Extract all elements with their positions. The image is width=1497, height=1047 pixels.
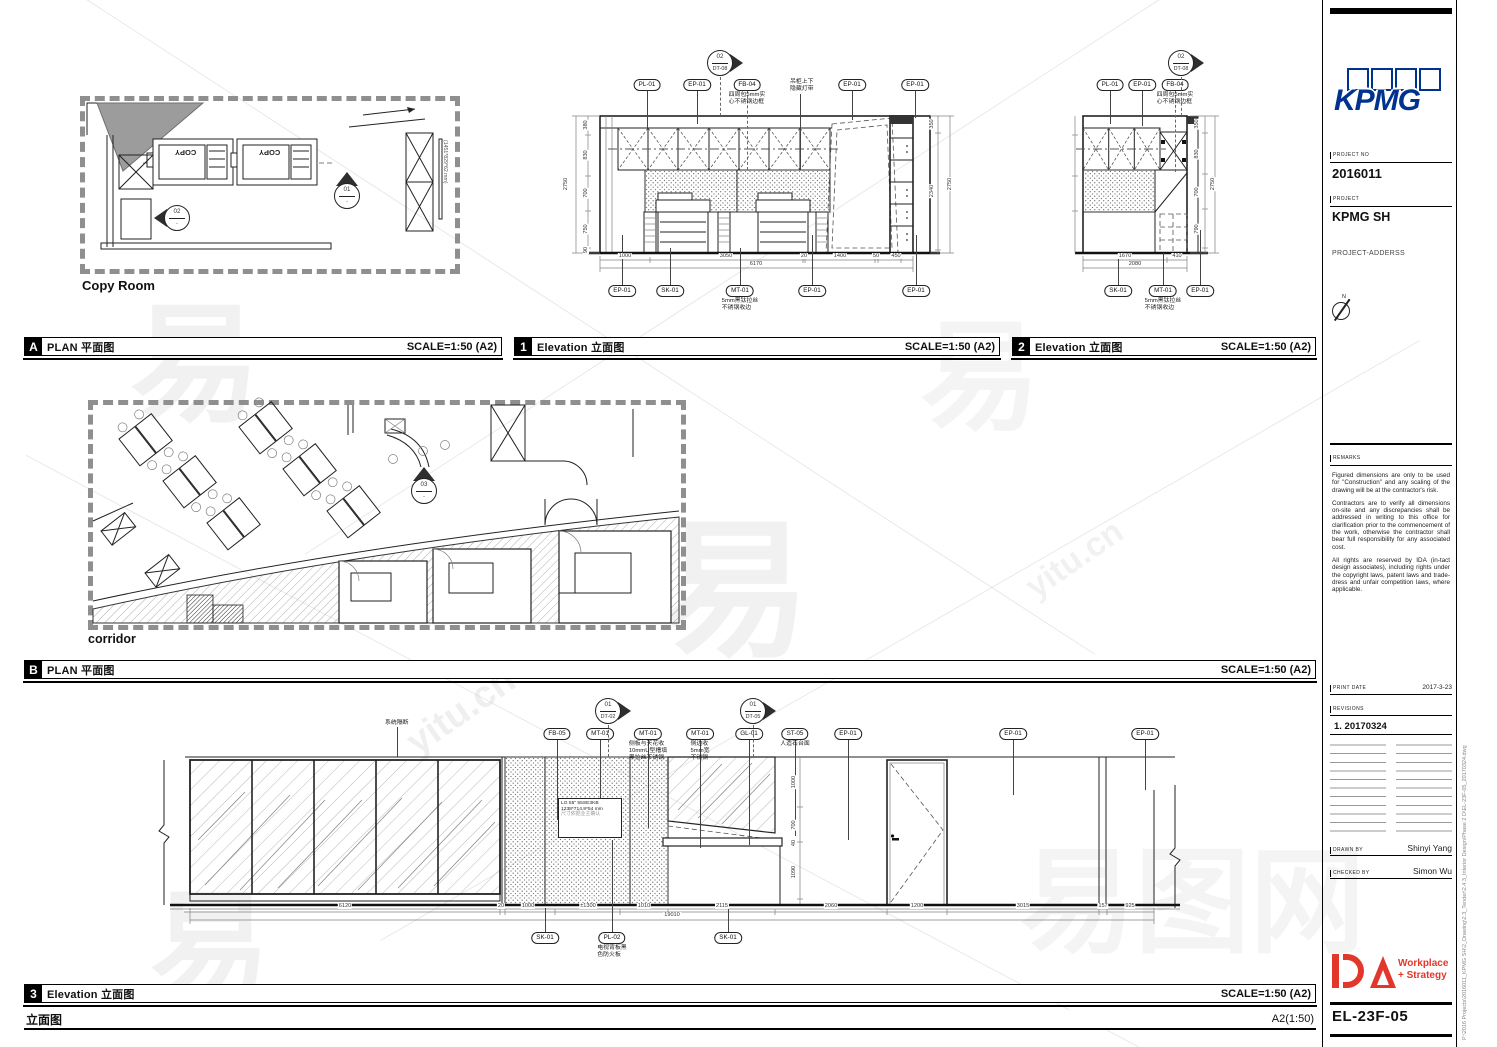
elevation-1-linework bbox=[560, 40, 990, 340]
corridor-linework bbox=[93, 405, 681, 625]
revisions-label: REVISIONS bbox=[1330, 706, 1453, 713]
print-date-value: 2017-3-23 bbox=[1422, 684, 1452, 691]
north-arrow-icon: N bbox=[1330, 296, 1354, 320]
revision-table-right bbox=[1396, 737, 1452, 837]
panel-3-title: Elevation 立面图 bbox=[47, 986, 135, 1002]
panel-2-number: 2 bbox=[1013, 338, 1030, 355]
panel-b-title: PLAN 平面图 bbox=[47, 662, 115, 678]
panel-a-letter: A bbox=[25, 338, 42, 355]
titleblock-top-bar bbox=[1330, 8, 1452, 14]
ida-word-1: Workplace bbox=[1398, 958, 1448, 970]
copier-label: COPY bbox=[175, 148, 196, 157]
panel-2-scale: SCALE=1:50 (A2) bbox=[1221, 341, 1311, 353]
project-no-label: PROJECT NO bbox=[1330, 152, 1453, 159]
ida-logo: Workplace + Strategy bbox=[1332, 950, 1454, 994]
checked-by-label: CHECKED BY bbox=[1330, 870, 1370, 877]
checked-by-value: Simon Wu bbox=[1413, 866, 1452, 876]
copy-room-linework bbox=[85, 101, 455, 269]
titleblock-left-border bbox=[1322, 0, 1323, 1047]
kpmg-logo-text: KPMG bbox=[1334, 84, 1420, 118]
remarks-paragraph: Figured dimensions are only to be used f… bbox=[1332, 472, 1450, 494]
tv-dimension-label: (1451*829*62 mm) bbox=[442, 140, 448, 184]
revision-table-left bbox=[1330, 737, 1386, 837]
copy-room-caption: Copy Room bbox=[82, 278, 155, 293]
project-no-value: 2016011 bbox=[1332, 166, 1382, 181]
sheet-type-label: 立面图 bbox=[26, 1011, 62, 1028]
panel-b-scale: SCALE=1:50 (A2) bbox=[1221, 664, 1311, 676]
tv-note: 尺寸依据业主确认 bbox=[561, 812, 619, 818]
corridor-caption: corridor bbox=[88, 632, 136, 646]
drawn-by-value: Shinyi Yang bbox=[1407, 843, 1452, 853]
titleblock-right-border bbox=[1456, 0, 1457, 1047]
remarks-label: REMARKS bbox=[1330, 455, 1453, 462]
file-path-vertical: P:\2016 Projects\2016011_KPMG SH\2_Drawi… bbox=[1462, 745, 1468, 1040]
project-address: PROJECT-ADDERSS bbox=[1332, 250, 1405, 257]
print-date-row: PRINT DATE 2017-3-23 bbox=[1330, 684, 1452, 692]
project-name: KPMG SH bbox=[1332, 210, 1390, 224]
watermark-site: yitu.cn bbox=[1019, 512, 1131, 607]
drawing-sheet: 易 易 易 易 yitu.cn yitu.cn 易图网 bbox=[0, 0, 1497, 1047]
panel-1-titlebar: 1 Elevation 立面图 SCALE=1:50 (A2) bbox=[514, 337, 1000, 356]
panel-b-letter: B bbox=[25, 661, 42, 678]
project-label: PROJECT bbox=[1330, 196, 1453, 203]
remarks-text: Figured dimensions are only to be used f… bbox=[1332, 472, 1450, 599]
sheet-size-label: A2(1:50) bbox=[1272, 1013, 1314, 1025]
kpmg-logo: KPMG bbox=[1330, 68, 1452, 120]
remarks-paragraph: Contractors are to verify all dimensions… bbox=[1332, 500, 1450, 551]
revision-entry: 1. 20170324 bbox=[1334, 721, 1387, 732]
panel-1-number: 1 bbox=[515, 338, 532, 355]
drawn-by-row: DRAWN BY Shinyi Yang bbox=[1330, 843, 1452, 854]
print-date-label: PRINT DATE bbox=[1330, 685, 1366, 692]
sheet-footer-bar: 立面图 A2(1:50) bbox=[24, 1010, 1316, 1030]
panel-1-scale: SCALE=1:50 (A2) bbox=[905, 341, 995, 353]
panel-a-title: PLAN 平面图 bbox=[47, 339, 115, 355]
elevation-2-linework bbox=[1060, 40, 1340, 340]
panel-a-titlebar: A PLAN 平面图 SCALE=1:50 (A2) bbox=[24, 337, 502, 356]
copier-label: COPY bbox=[259, 148, 280, 157]
panel-a-scale: SCALE=1:50 (A2) bbox=[407, 341, 497, 353]
elevation-3-linework bbox=[150, 690, 1210, 990]
north-letter: N bbox=[1342, 294, 1346, 300]
panel-2-titlebar: 2 Elevation 立面图 SCALE=1:50 (A2) bbox=[1012, 337, 1316, 356]
panel-3-scale: SCALE=1:50 (A2) bbox=[1221, 988, 1311, 1000]
checked-by-row: CHECKED BY Simon Wu bbox=[1330, 866, 1452, 877]
panel-b-titlebar: B PLAN 平面图 SCALE=1:50 (A2) bbox=[24, 660, 1316, 679]
panel-2-title: Elevation 立面图 bbox=[1035, 339, 1123, 355]
drawn-by-label: DRAWN BY bbox=[1330, 847, 1363, 854]
remarks-paragraph: All rights are reserved by IDA (in-tact … bbox=[1332, 557, 1450, 593]
ida-word-2: + Strategy bbox=[1398, 970, 1448, 982]
sheet-number: EL-23F-05 bbox=[1332, 1008, 1408, 1025]
panel-1-title: Elevation 立面图 bbox=[537, 339, 625, 355]
panel-3-number: 3 bbox=[25, 985, 42, 1002]
panel-3-titlebar: 3 Elevation 立面图 SCALE=1:50 (A2) bbox=[24, 984, 1316, 1003]
tv-spec-box: LG 55" 55SE3KB 1238*714.9*54 mm 尺寸依据业主确认 bbox=[558, 798, 622, 838]
